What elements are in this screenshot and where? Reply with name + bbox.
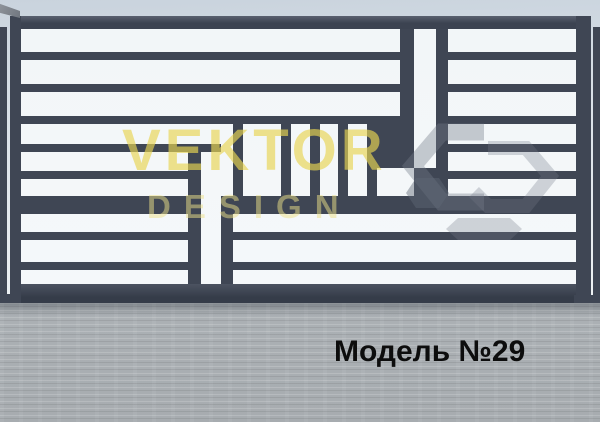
gate-bar	[10, 284, 591, 303]
gate-bar	[593, 27, 600, 301]
gate-bar	[448, 84, 576, 92]
gate-bar	[576, 16, 591, 303]
gate-bar	[10, 16, 591, 29]
gate-bar	[21, 52, 400, 60]
gate-bar	[21, 232, 188, 240]
watermark-text-design: DESIGN	[147, 190, 407, 223]
gate-bar	[21, 262, 188, 270]
gate-bar	[0, 27, 7, 301]
product-render-scene: VEKTOR DESIGN Модель №29	[0, 0, 600, 422]
hexagon-logo-watermark	[386, 116, 574, 244]
gate-bar	[21, 84, 400, 92]
gate-bar	[10, 16, 21, 303]
model-caption: Модель №29	[334, 335, 525, 369]
watermark-text-vektor: VEKTOR	[122, 122, 412, 180]
gate-bar	[233, 262, 576, 270]
gate-bar	[448, 52, 576, 60]
